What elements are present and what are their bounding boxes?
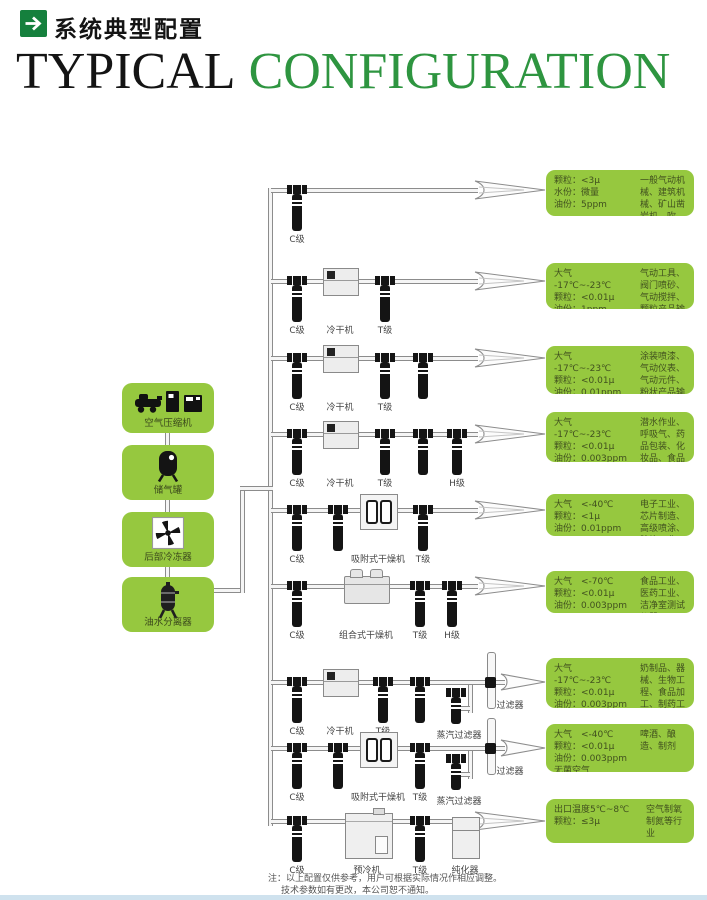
equipment-label: T级 (413, 790, 428, 803)
equipment-label: C级 (289, 628, 304, 641)
spec-lines: 出口温度5℃~8℃颗粒：≤3μ (554, 805, 642, 837)
equipment-label: C级 (289, 552, 304, 565)
refrigerated-dryer-icon (323, 421, 359, 449)
refrigerated-dryer-icon (323, 669, 359, 697)
equipment-label: 组合式干燥机 (339, 628, 393, 641)
pre-cooler-icon (345, 813, 393, 859)
arrow-right-icon (20, 10, 47, 37)
spec-lines: 大气 <-40℃颗粒：<1μ油份：0.01ppm (554, 500, 636, 530)
equipment-label: T级 (378, 476, 393, 489)
flow-arrow-icon (474, 345, 548, 371)
equipment-label: 吸附式干燥机 (351, 790, 405, 803)
page-title-zh: 系统典型配置 (54, 10, 204, 44)
equipment-label: H级 (444, 628, 460, 641)
equipment-label: 蒸汽过滤器 (436, 794, 481, 807)
flow-arrow-icon (474, 177, 548, 203)
title-en-green: CONFIGURATION (249, 43, 671, 100)
page-edge-strip (0, 895, 707, 900)
filter-icon (287, 675, 307, 725)
equipment-label: C级 (289, 323, 304, 336)
purifier-icon (452, 817, 480, 859)
equipment-label: 吸附式干燥机 (351, 552, 405, 565)
adsorption-dryer-icon (360, 494, 398, 530)
chain-label: 空气压缩机 (122, 415, 214, 429)
air-tank-icon (122, 450, 214, 483)
equipment-label: 蒸汽过滤器 (436, 728, 481, 741)
applications-text: 一般气动机械、建筑机械、矿山凿岩机、吹扫、冷冻 (640, 176, 686, 210)
filter-icon (410, 814, 430, 864)
filter-icon (287, 814, 307, 864)
equipment-label: C级 (289, 724, 304, 737)
applications-text: 涂装喷漆、气动仪表、气动元件、粉状产品输送、烟草工业轴承 (640, 352, 686, 388)
filter-icon (287, 741, 307, 791)
applications-text: 空气制氧 制氮等行业 (646, 805, 686, 837)
spec-box: 颗粒：<3μ水份：微量油份：5ppm 一般气动机械、建筑机械、矿山凿岩机、吹扫、… (546, 170, 694, 216)
chain-box-air-tank: 储气罐 (122, 445, 214, 500)
chain-label: 储气罐 (122, 482, 214, 496)
filter-icon (375, 427, 395, 477)
filter-icon (413, 427, 433, 477)
pipe-vertical (240, 486, 245, 593)
equipment-label: C级 (289, 232, 304, 245)
spec-box: 大气-17℃~-23℃颗粒：<0.01μ油份：0.003ppm无异味 潜水作业、… (546, 412, 694, 462)
filter-icon (287, 579, 307, 629)
spec-box: 出口温度5℃~8℃颗粒：≤3μ 空气制氧 制氮等行业 (546, 799, 694, 843)
spec-box: 大气 <-70℃颗粒：<0.01μ油份：0.003ppm 食品工业、医药工业、洁… (546, 571, 694, 613)
equipment-label: 冷干机 (326, 323, 353, 336)
chain-box-air-compressor: 空气压缩机 (122, 383, 214, 433)
refrigerated-dryer-icon (323, 345, 359, 373)
spec-box: 大气-17℃~-23℃颗粒：<0.01μ油份：0.01ppm 涂装喷漆、气动仪表… (546, 346, 694, 394)
spec-box: 大气 <-40℃颗粒：<1μ油份：0.01ppm 电子工业、芯片制造、高级喷涂、… (546, 494, 694, 536)
equipment-label: T级 (413, 628, 428, 641)
spec-lines: 大气 <-70℃颗粒：<0.01μ油份：0.003ppm (554, 577, 636, 607)
chain-box-after-cooler: 后部冷冻器 (122, 512, 214, 567)
applications-text: 气动工具、阀门喷砂、气动搅拌、颗粒产品输送、木工设备 (640, 269, 686, 303)
filter-icon (373, 675, 393, 725)
equipment-label: C级 (289, 790, 304, 803)
equipment-label: 过滤器 (496, 698, 523, 711)
filter-icon (413, 351, 433, 401)
spec-lines: 大气-17℃~-23℃颗粒：<0.01μ油份：0.01ppm (554, 352, 636, 388)
inline-filter-icon (487, 718, 496, 775)
filter-icon (287, 503, 307, 553)
applications-text: 食品工业、医药工业、洁净室测试仪器 (640, 577, 686, 607)
pipe-horizontal (240, 486, 273, 491)
flow-arrow-icon (500, 735, 548, 761)
applications-text: 奶制品、器械、生物工程、食品加工、制药工业 (640, 664, 686, 702)
chain-box-oil-water-separator: 油水分离器 (122, 577, 214, 632)
flow-arrow-icon (474, 421, 548, 447)
pipe-vertical (165, 433, 170, 445)
spec-box: 大气-17℃~-23℃颗粒：<0.01μ油份：1ppm 气动工具、阀门喷砂、气动… (546, 263, 694, 309)
applications-text: 电子工业、芯片制造、高级喷涂、胶片工业、仪表仪器、核工业、航天工业 (640, 500, 686, 530)
filter-icon (442, 579, 462, 629)
equipment-label: 冷干机 (326, 476, 353, 489)
filter-icon (375, 274, 395, 324)
flow-arrow-icon (474, 808, 548, 834)
equipment-label: 过滤器 (496, 764, 523, 777)
air-compressor-icon (122, 388, 214, 415)
spec-box: 大气-17℃~-23℃颗粒：<0.01μ油份：0.003ppm无菌空气 奶制品、… (546, 658, 694, 708)
page-title-en: TYPICALCONFIGURATION (16, 42, 670, 101)
page: 系统典型配置 TYPICALCONFIGURATION 空气压缩机 储气罐 后部… (0, 0, 707, 900)
flow-arrow-icon (500, 669, 548, 695)
applications-text: 潜水作业、呼吸气、药品包装、化妆品、食品配置、罐装 (640, 418, 686, 456)
filter-icon (287, 351, 307, 401)
filter-icon (410, 741, 430, 791)
equipment-label: T级 (378, 323, 393, 336)
equipment-label: H级 (449, 476, 465, 489)
refrigerated-dryer-icon (323, 268, 359, 296)
equipment-label: 冷干机 (326, 400, 353, 413)
filter-icon (413, 503, 433, 553)
filter-icon (328, 503, 348, 553)
spec-lines: 颗粒：<3μ水份：微量油份：5ppm (554, 176, 636, 210)
chain-label: 后部冷冻器 (122, 549, 214, 563)
filter-icon (447, 427, 467, 477)
spec-lines: 大气-17℃~-23℃颗粒：<0.01μ油份：1ppm (554, 269, 636, 303)
adsorption-dryer-icon (360, 732, 398, 768)
pipe-vertical (165, 500, 170, 512)
equipment-label: C级 (289, 476, 304, 489)
spec-lines: 大气-17℃~-23℃颗粒：<0.01μ油份：0.003ppm无异味 (554, 418, 636, 456)
filter-icon (287, 274, 307, 324)
chain-label: 油水分离器 (122, 614, 214, 628)
applications-text: 啤酒、酿造、制剂 (640, 730, 686, 766)
spec-lines: 大气-17℃~-23℃颗粒：<0.01μ油份：0.003ppm无菌空气 (554, 664, 636, 702)
filter-icon (328, 741, 348, 791)
equipment-label: T级 (416, 552, 431, 565)
filter-icon (287, 183, 307, 233)
filter-icon (287, 427, 307, 477)
after-cooler-fan-icon (122, 517, 214, 549)
filter-icon (410, 579, 430, 629)
spec-box: 大气 <-40℃颗粒：<0.01μ油份：0.003ppm无菌空气 啤酒、酿造、制… (546, 724, 694, 772)
filter-icon (410, 675, 430, 725)
inline-filter-icon (487, 652, 496, 709)
filter-icon (375, 351, 395, 401)
equipment-label: 冷干机 (326, 724, 353, 737)
pipe-vertical (165, 567, 170, 577)
equipment-label: T级 (378, 400, 393, 413)
flow-arrow-icon (474, 497, 548, 523)
spec-lines: 大气 <-40℃颗粒：<0.01μ油份：0.003ppm无菌空气 (554, 730, 636, 766)
title-en-black: TYPICAL (16, 43, 236, 100)
flow-arrow-icon (474, 573, 548, 599)
flow-arrow-icon (474, 268, 548, 294)
equipment-label: C级 (289, 400, 304, 413)
combined-dryer-icon (344, 576, 390, 604)
